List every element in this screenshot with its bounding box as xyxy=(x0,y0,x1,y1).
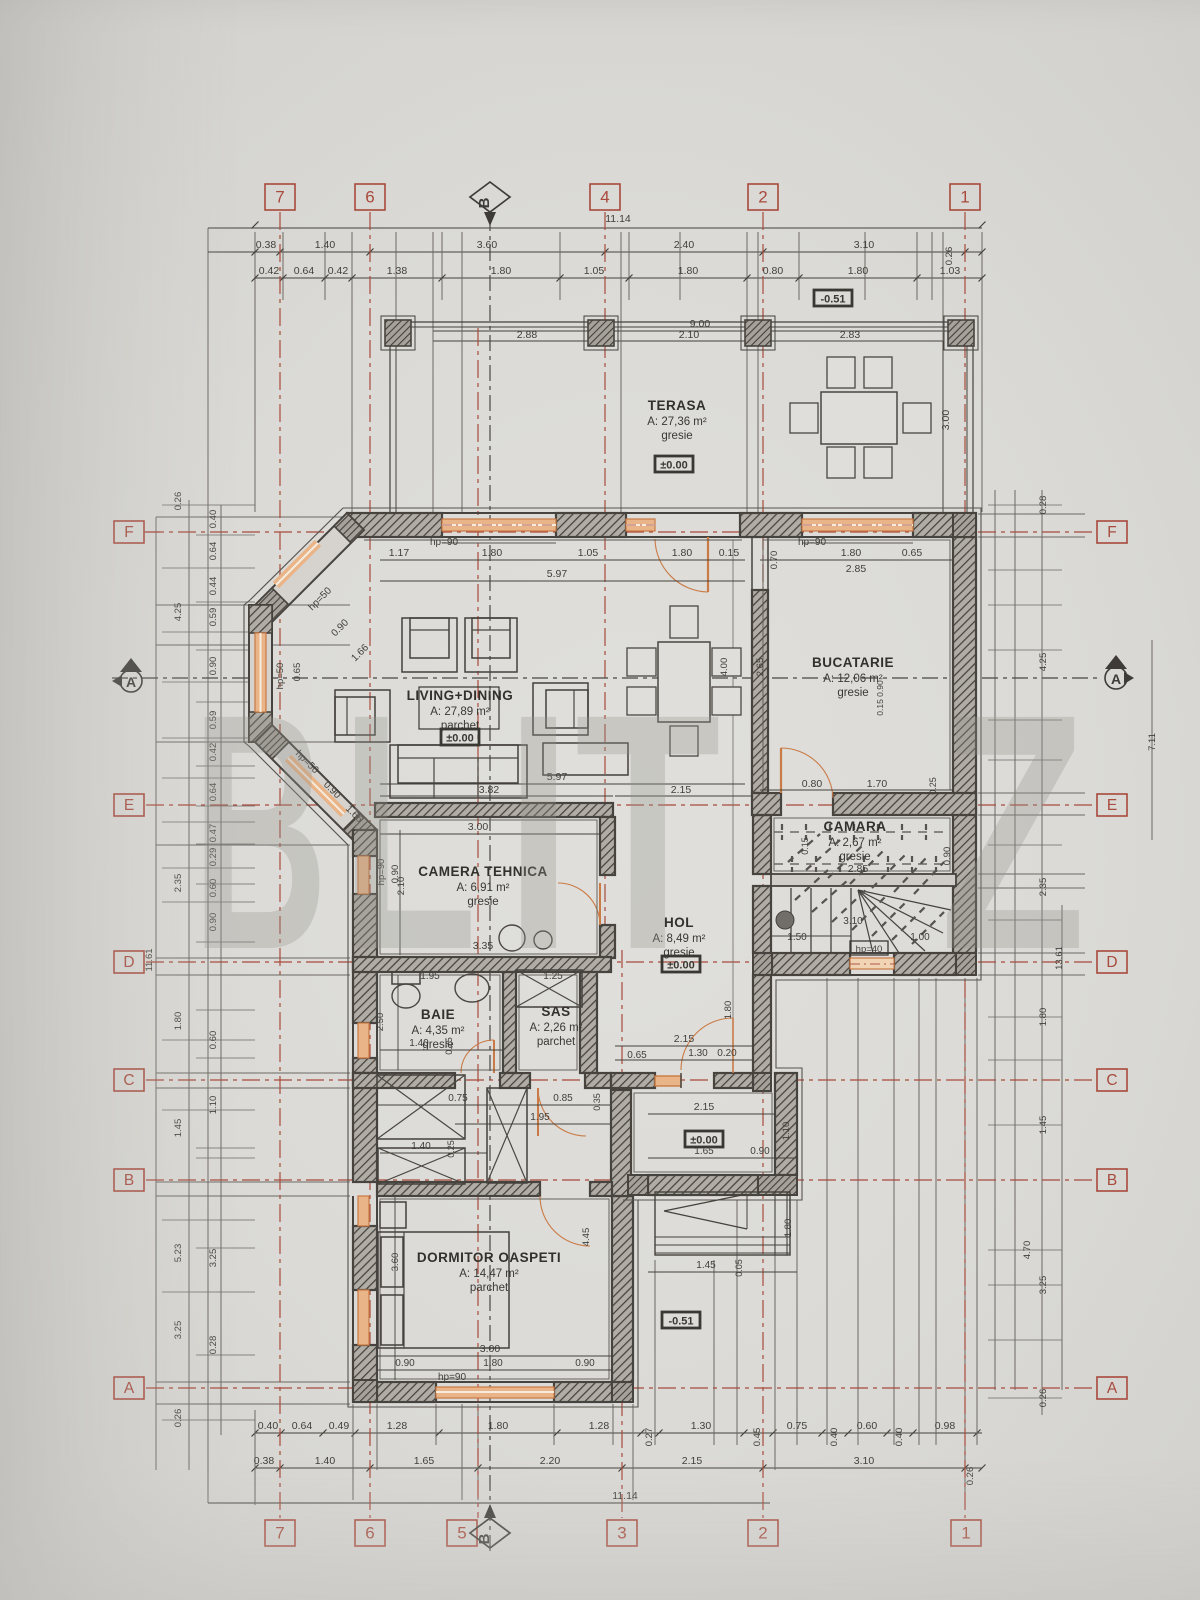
svg-text:F: F xyxy=(1107,524,1116,541)
svg-text:0.40: 0.40 xyxy=(894,1428,905,1447)
svg-text:0.65: 0.65 xyxy=(627,1050,647,1061)
svg-text:0.80: 0.80 xyxy=(763,265,784,277)
svg-text:B: B xyxy=(1107,1172,1117,1189)
svg-text:2.15: 2.15 xyxy=(674,1033,695,1045)
svg-text:3.00: 3.00 xyxy=(480,1343,501,1355)
svg-text:-0.51: -0.51 xyxy=(820,294,845,306)
svg-text:0.40: 0.40 xyxy=(829,1428,840,1447)
svg-text:0.26: 0.26 xyxy=(944,247,955,266)
svg-text:1.70: 1.70 xyxy=(867,778,888,790)
svg-text:0.90: 0.90 xyxy=(575,1358,595,1369)
svg-text:A: 2,67 m²: A: 2,67 m² xyxy=(828,837,881,849)
svg-text:4: 4 xyxy=(600,188,609,207)
svg-text:1.40: 1.40 xyxy=(315,239,336,251)
svg-text:1.45: 1.45 xyxy=(696,1260,716,1271)
svg-text:4.45: 4.45 xyxy=(581,1228,592,1247)
svg-text:1.80: 1.80 xyxy=(483,1358,503,1369)
svg-text:TERASA: TERASA xyxy=(648,398,707,413)
svg-text:3.10: 3.10 xyxy=(843,916,863,927)
svg-text:gresie: gresie xyxy=(837,687,868,699)
svg-text:0.40: 0.40 xyxy=(258,1420,279,1432)
svg-text:2.85: 2.85 xyxy=(848,863,869,875)
svg-text:2.88: 2.88 xyxy=(517,329,538,341)
svg-text:BUCATARIE: BUCATARIE xyxy=(812,655,894,670)
svg-text:1.45: 1.45 xyxy=(1038,1116,1049,1135)
svg-text:0.15 0.90: 0.15 0.90 xyxy=(875,680,885,716)
svg-text:1.38: 1.38 xyxy=(387,265,408,277)
svg-text:A: 14,47 m²: A: 14,47 m² xyxy=(459,1268,519,1280)
svg-text:1.17: 1.17 xyxy=(389,547,410,559)
svg-text:0.65: 0.65 xyxy=(902,547,923,559)
svg-text:2: 2 xyxy=(758,188,767,207)
svg-text:T: T xyxy=(575,644,721,1020)
svg-text:DORMITOR OASPETI: DORMITOR OASPETI xyxy=(417,1250,561,1265)
svg-text:1: 1 xyxy=(960,188,969,207)
svg-text:A: 27,36 m²: A: 27,36 m² xyxy=(647,416,707,428)
svg-text:1.80: 1.80 xyxy=(482,547,503,559)
svg-text:hp=90: hp=90 xyxy=(438,1372,467,1383)
svg-text:3.00: 3.00 xyxy=(940,410,952,431)
svg-text:1.30: 1.30 xyxy=(691,1420,712,1432)
svg-text:parchet: parchet xyxy=(537,1036,576,1048)
svg-text:0.27: 0.27 xyxy=(644,1428,655,1447)
svg-text:3.10: 3.10 xyxy=(854,239,875,251)
svg-text:1.95: 1.95 xyxy=(530,1112,550,1123)
svg-text:1.65: 1.65 xyxy=(694,1146,714,1157)
svg-text:gresie: gresie xyxy=(661,430,692,442)
svg-text:0.15: 0.15 xyxy=(719,547,740,559)
svg-text:1.10: 1.10 xyxy=(781,1122,792,1141)
svg-text:0.75: 0.75 xyxy=(787,1420,808,1432)
svg-text:2.15: 2.15 xyxy=(694,1101,715,1113)
svg-text:3.25: 3.25 xyxy=(1038,1276,1049,1295)
svg-text:2.10: 2.10 xyxy=(679,329,700,341)
svg-text:6: 6 xyxy=(365,188,374,207)
svg-text:0.20: 0.20 xyxy=(717,1048,737,1059)
svg-text:0.42: 0.42 xyxy=(328,265,349,277)
svg-text:hp=90: hp=90 xyxy=(798,537,827,548)
svg-text:0.42: 0.42 xyxy=(259,265,280,277)
svg-text:CAMARA: CAMARA xyxy=(824,819,887,834)
svg-text:2.40: 2.40 xyxy=(674,239,695,251)
svg-text:0.60: 0.60 xyxy=(857,1420,878,1432)
svg-text:I: I xyxy=(505,645,572,1020)
svg-text:0.64: 0.64 xyxy=(292,1420,313,1432)
svg-text:A: A xyxy=(1111,671,1121,687)
svg-text:-0.51: -0.51 xyxy=(668,1316,693,1328)
svg-text:A: A xyxy=(1107,1380,1118,1397)
svg-text:A: 12,06 m²: A: 12,06 m² xyxy=(823,673,883,685)
svg-text:parchet: parchet xyxy=(470,1282,509,1294)
svg-text:4.70: 4.70 xyxy=(1022,1241,1033,1260)
svg-text:0.38: 0.38 xyxy=(256,239,277,251)
svg-text:1.05: 1.05 xyxy=(584,265,605,277)
svg-text:0.25: 0.25 xyxy=(928,777,938,795)
svg-text:1.80: 1.80 xyxy=(491,265,512,277)
svg-text:C: C xyxy=(1106,1072,1117,1089)
svg-text:2.65: 2.65 xyxy=(755,658,766,677)
svg-text:1.28: 1.28 xyxy=(387,1420,408,1432)
svg-text:0.05: 0.05 xyxy=(734,1259,744,1277)
svg-text:1.00: 1.00 xyxy=(910,932,930,943)
svg-text:1.80: 1.80 xyxy=(723,1001,734,1020)
svg-text:D: D xyxy=(1106,954,1117,971)
svg-text:7.11: 7.11 xyxy=(1147,733,1158,751)
svg-text:1.03: 1.03 xyxy=(940,265,961,277)
svg-text:0.90: 0.90 xyxy=(395,1358,415,1369)
svg-text:hp=90: hp=90 xyxy=(430,537,459,548)
svg-text:2.85: 2.85 xyxy=(846,563,867,575)
svg-text:L: L xyxy=(340,644,478,1020)
svg-text:5.97: 5.97 xyxy=(547,568,568,580)
svg-text:1.40: 1.40 xyxy=(409,1038,429,1049)
svg-text:3.60: 3.60 xyxy=(390,1253,401,1272)
svg-text:A: 4,35 m²: A: 4,35 m² xyxy=(411,1025,464,1037)
svg-text:E: E xyxy=(1107,797,1117,814)
svg-text:1.28: 1.28 xyxy=(589,1420,610,1432)
svg-text:0.75: 0.75 xyxy=(448,1093,468,1104)
svg-text:±0.00: ±0.00 xyxy=(690,1135,717,1147)
svg-text:3.82: 3.82 xyxy=(479,784,500,796)
svg-text:1.80: 1.80 xyxy=(841,547,862,559)
svg-text:3.60: 3.60 xyxy=(477,239,498,251)
svg-text:1.80: 1.80 xyxy=(848,265,869,277)
svg-text:0.80: 0.80 xyxy=(802,778,823,790)
svg-text:2.83: 2.83 xyxy=(840,329,861,341)
svg-text:0.26: 0.26 xyxy=(1038,1389,1049,1408)
svg-text:0.28: 0.28 xyxy=(1038,496,1049,515)
svg-text:0.15: 0.15 xyxy=(800,837,810,855)
svg-text:0.25: 0.25 xyxy=(444,1037,454,1055)
svg-text:1.80: 1.80 xyxy=(672,547,693,559)
svg-text:1.50: 1.50 xyxy=(787,932,807,943)
svg-text:0.25: 0.25 xyxy=(446,1140,456,1158)
svg-text:0.49: 0.49 xyxy=(329,1420,350,1432)
svg-text:0.45: 0.45 xyxy=(752,1428,763,1447)
svg-text:±0.00: ±0.00 xyxy=(660,460,687,472)
svg-text:11.14: 11.14 xyxy=(605,213,631,225)
svg-text:1.80: 1.80 xyxy=(783,1219,794,1238)
svg-text:A: 2,26 m²: A: 2,26 m² xyxy=(529,1022,582,1034)
svg-text:0.90: 0.90 xyxy=(750,1146,770,1157)
svg-text:1.80: 1.80 xyxy=(678,265,699,277)
svg-text:1.40: 1.40 xyxy=(411,1141,431,1152)
svg-text:7: 7 xyxy=(275,188,284,207)
svg-text:hp=40: hp=40 xyxy=(856,944,883,955)
svg-text:0.64: 0.64 xyxy=(294,265,315,277)
svg-text:B: B xyxy=(476,197,493,208)
svg-text:0.35: 0.35 xyxy=(592,1093,602,1111)
svg-text:1.05: 1.05 xyxy=(578,547,599,559)
svg-text:1.30: 1.30 xyxy=(688,1048,708,1059)
svg-text:0.98: 0.98 xyxy=(935,1420,956,1432)
svg-text:Z: Z xyxy=(940,644,1086,1020)
svg-text:0.85: 0.85 xyxy=(553,1093,573,1104)
svg-text:gresie: gresie xyxy=(839,851,870,863)
svg-text:1.80: 1.80 xyxy=(488,1420,509,1432)
